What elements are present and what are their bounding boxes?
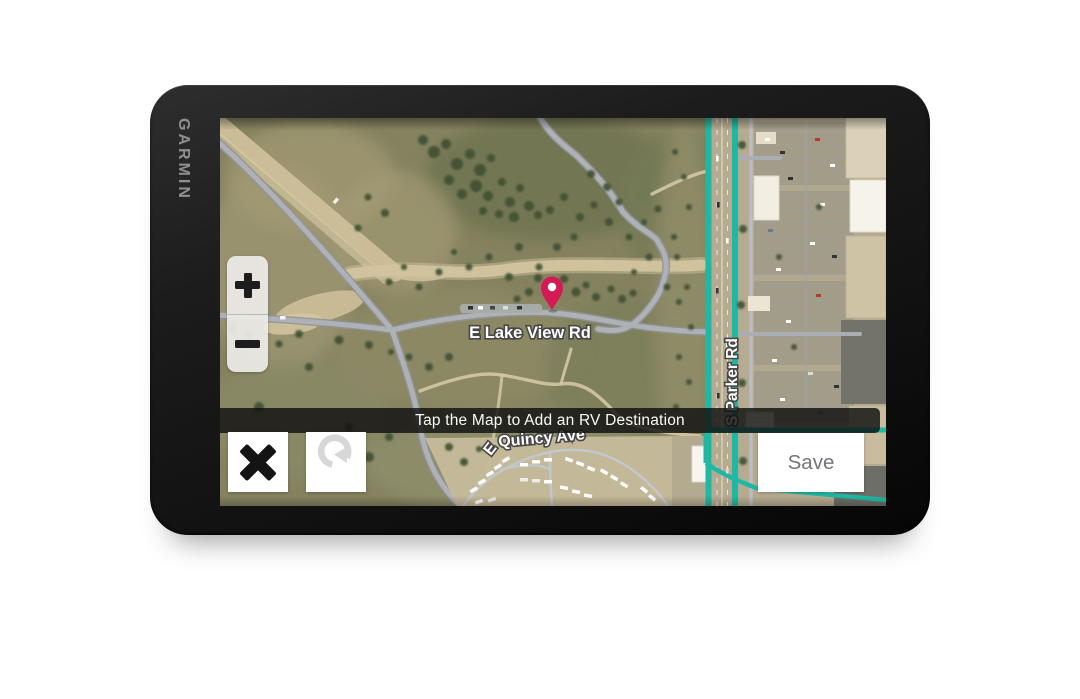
plus-icon [244, 273, 252, 298]
save-button[interactable]: Save [758, 433, 864, 492]
zoom-in-button[interactable] [227, 256, 268, 314]
label-lake-view-rd: E Lake View Rd [469, 324, 591, 342]
garmin-logo: GARMIN [174, 118, 192, 201]
device-screen: E Lake View Rd Quincy Ave E S Parker Rd … [220, 118, 886, 506]
rv-park [425, 436, 712, 506]
close-button[interactable] [228, 432, 288, 492]
minus-icon [235, 340, 260, 348]
zoom-out-button[interactable] [227, 314, 268, 372]
undo-rotate-ccw-icon [306, 432, 366, 492]
instruction-banner: Tap the Map to Add an RV Destination [220, 408, 880, 433]
screenshot-canvas: GARMIN [0, 0, 1080, 699]
garmin-gps-device: GARMIN [150, 85, 930, 535]
zoom-control [227, 256, 268, 372]
undo-button[interactable] [306, 432, 366, 492]
